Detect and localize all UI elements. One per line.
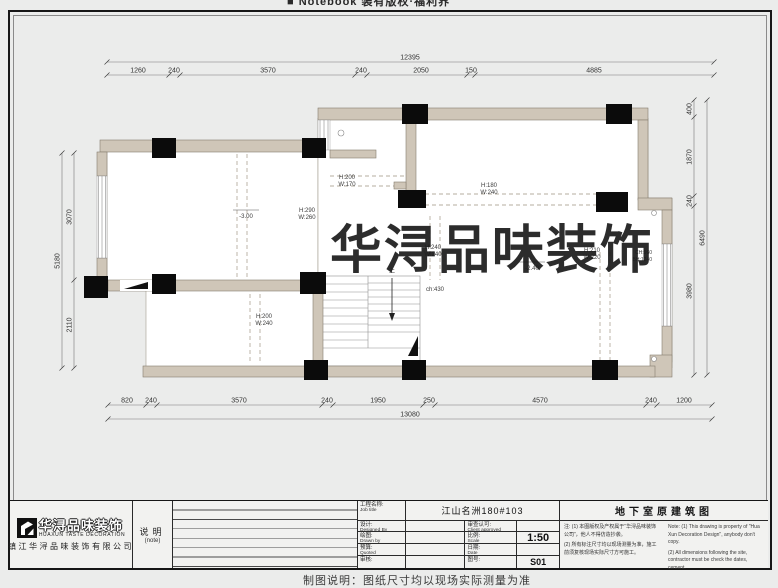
beam-annotation: W:170 — [338, 182, 356, 188]
date-value — [517, 544, 559, 555]
note-label-cell: 说明 (note) — [133, 501, 173, 568]
dim-label: 1870 — [687, 149, 694, 165]
beam-annotation: H:200 — [256, 314, 273, 320]
client-approved-value — [517, 521, 559, 531]
dim-label: 240 — [321, 398, 333, 405]
checked-value — [406, 556, 466, 568]
dim-label: 1260 — [130, 68, 146, 75]
dim-label: 2110 — [67, 317, 74, 332]
staircase — [322, 276, 420, 366]
dim-label: 150 — [465, 68, 477, 75]
ceiling-height-label: ch:430 — [426, 287, 445, 293]
door-opening — [120, 280, 152, 291]
dim-label: 240 — [645, 398, 657, 405]
dim-label: 4570 — [532, 398, 548, 405]
notes-chinese: 注: (1) 本图版权及产权属于“华浔品味装饰公司”，他人不得仿造抄袭。 (2)… — [560, 521, 664, 569]
dim-label: 240 — [145, 398, 157, 405]
dim-label: 3980 — [687, 283, 694, 299]
designed-by-label: 设计:Designed By — [358, 521, 406, 531]
dim-label: 240 — [168, 68, 180, 75]
company-name: 镇江华浔品味装饰有限公司 — [8, 541, 134, 552]
date-label: 日期:Date — [465, 544, 517, 555]
dim-total-label: 13080 — [400, 412, 420, 419]
dim-label: 3070 — [67, 209, 74, 225]
company-logo-cell: 华浔品味装饰 HUAXUN TASTE DECORATION 镇江华浔品味装饰有… — [10, 501, 133, 568]
drawn-by-value — [406, 532, 466, 543]
dim-label: 240 — [355, 68, 367, 75]
dim-label: 250 — [423, 398, 435, 405]
window-end-symbol — [652, 211, 657, 216]
beam-annotation: H:180 — [481, 183, 498, 189]
beam-annotation: W:240 — [255, 321, 273, 327]
beam-annotation: W:240 — [480, 190, 498, 196]
company-watermark: 华浔品味装饰 — [330, 222, 654, 280]
drawn-by-label: 绘图:Drawn by — [358, 532, 406, 543]
drawing-title: 地下室原建筑图 — [560, 501, 768, 521]
dim-label: 1950 — [370, 398, 386, 405]
dim-label: 1200 — [676, 398, 692, 405]
ceiling-symbol — [338, 130, 344, 136]
logo-subtitle: HUAXUN TASTE DECORATION — [39, 533, 125, 538]
bottom-edge-note: 制图说明：图纸尺寸均以现场实际测量为准 — [303, 572, 531, 588]
dim-total-label: 12395 — [400, 55, 420, 62]
beam-annotation: H:200 — [339, 175, 356, 181]
dim-label: 4885 — [586, 68, 602, 75]
scale-label: 比例:Scale — [465, 532, 517, 543]
dimension-chain-left: 3070 2110 5180 — [55, 151, 77, 371]
dim-total-label: 5180 — [55, 253, 62, 269]
sheet-no-label: 图号: — [465, 556, 517, 568]
job-title-label: 工程名称:Job title — [358, 501, 406, 520]
notes-english: Note: (1) This drawing is property of "H… — [664, 521, 768, 569]
dim-label: 240 — [687, 195, 694, 207]
note-label-en: (note) — [145, 538, 161, 544]
dimension-chain-bottom: 820 240 3570 240 1950 250 4570 240 1200 … — [106, 398, 715, 422]
note-label: 说明 — [139, 525, 165, 538]
beam-annotation: W:260 — [298, 215, 316, 221]
drawing-title-cell: 地下室原建筑图 注: (1) 本图版权及产权属于“华浔品味装饰公司”，他人不得仿… — [560, 501, 768, 568]
checked-label: 审核: — [358, 556, 406, 568]
floor-plan-canvas: H:200 W:170 H:290 W:260 H:180 W:240 H:20… — [0, 0, 778, 500]
project-info-table: 工程名称:Job title 江山名洲180#103 设计:Designed B… — [358, 501, 560, 568]
title-block: 华浔品味装饰 HUAXUN TASTE DECORATION 镇江华浔品味装饰有… — [10, 500, 768, 568]
dim-label: 2050 — [413, 68, 429, 75]
designed-by-value — [406, 521, 466, 531]
sheet-no-value: S01 — [517, 556, 559, 568]
dimension-chain-top: 1260 240 3570 240 2050 150 4885 12395 — [105, 55, 717, 78]
client-approved-label: 审查认可:Client approved — [465, 521, 517, 531]
dim-label: 820 — [121, 398, 133, 405]
dim-total-label: 6490 — [700, 230, 707, 246]
blank-note-lines — [173, 501, 358, 568]
job-title-value: 江山名洲180#103 — [406, 501, 559, 520]
window-end-symbol — [652, 357, 657, 362]
quoted-label: 预算:Quoted — [358, 544, 406, 555]
dimension-chain-right: 400 1870 240 3980 6490 — [687, 98, 710, 378]
dim-label: 400 — [687, 103, 694, 115]
dim-label: 3570 — [260, 68, 276, 75]
quoted-value — [406, 544, 466, 555]
drawing-sheet-page: { "frame": { "top_note": "■ Notebook 装有版… — [0, 0, 778, 579]
level-mark: -3.00 — [239, 214, 253, 220]
logo-wordmark: 华浔品味装饰 — [39, 519, 125, 532]
dim-label: 3570 — [231, 398, 247, 405]
beam-annotation: H:290 — [299, 208, 316, 214]
scale-value: 1:50 — [517, 532, 559, 543]
company-logo-icon — [17, 518, 37, 538]
